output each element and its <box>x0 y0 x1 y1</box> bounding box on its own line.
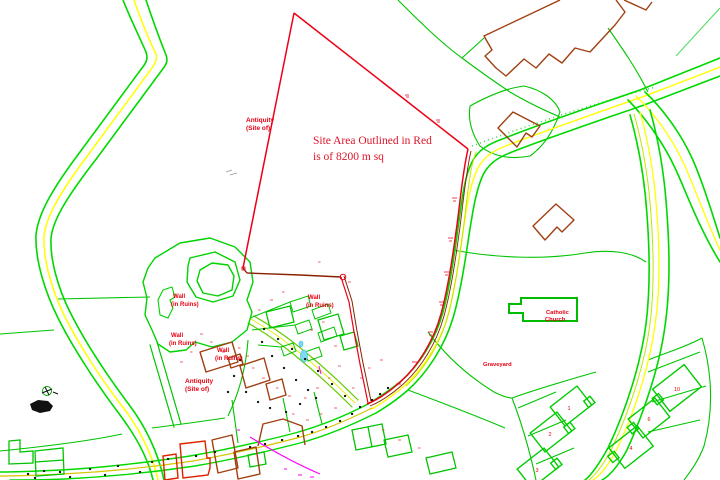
antiquity-label-north-line2: (Site of) <box>246 125 270 132</box>
wall-ruins-label-3-line2: (in Ruins) <box>215 356 243 362</box>
wall-ruins-label-1-line2: (in Ruins) <box>171 302 199 308</box>
church-label-line1: Catholic <box>546 310 570 316</box>
wall-ruins-label-2-line2: (in Ruins) <box>169 341 197 347</box>
house-number-6: 6 <box>647 417 650 423</box>
house-number-10: 10 <box>674 387 680 393</box>
wall-ruins-label-4-line2: (in Ruins) <box>306 303 334 309</box>
wall-ruins-label-3-line1: Wall <box>217 348 229 354</box>
wall-strip <box>150 342 181 427</box>
ringfort-enclosure <box>143 238 253 352</box>
wall-ruins-label-2-line1: Wall <box>171 333 183 339</box>
wall-ruins-label-4-line1: Wall <box>308 295 320 301</box>
symbols <box>28 170 421 478</box>
site-note-line1: Site Area Outlined in Red <box>313 135 432 147</box>
antiquity-label-south-line2: (Site of) <box>185 386 209 393</box>
map-labels: Site Area Outlined in Red is of 8200 m s… <box>169 117 680 474</box>
brown-buildings <box>200 0 652 479</box>
pond <box>301 350 308 362</box>
red-buildings <box>163 441 210 480</box>
church-label-line2: Church <box>545 317 566 323</box>
site-note-line2: is of 8200 m sq <box>313 151 384 163</box>
tree-symbol <box>42 387 58 396</box>
street-trees <box>28 329 388 478</box>
house-number-1: 1 <box>567 406 570 412</box>
west-road <box>36 0 167 480</box>
antiquity-label-north-line1: Antiquity <box>246 117 275 124</box>
antiquity-label-south-line1: Antiquity <box>185 378 214 385</box>
service-line-magenta <box>237 366 321 477</box>
graveyard-label: Graveyard <box>483 362 512 368</box>
estate-road <box>585 110 669 480</box>
site-location-map: Site Area Outlined in Red is of 8200 m s… <box>0 0 720 480</box>
house-number-3: 3 <box>535 468 538 474</box>
pond-small <box>299 341 303 347</box>
house-number-4: 4 <box>629 446 632 452</box>
benchmark-mark <box>226 170 237 175</box>
wall-ruins-label-1-line1: Wall <box>173 294 185 300</box>
house-number-2: 2 <box>548 432 551 438</box>
rock-outcrop-symbol <box>30 400 53 413</box>
map-canvas: Site Area Outlined in Red is of 8200 m s… <box>0 0 720 480</box>
